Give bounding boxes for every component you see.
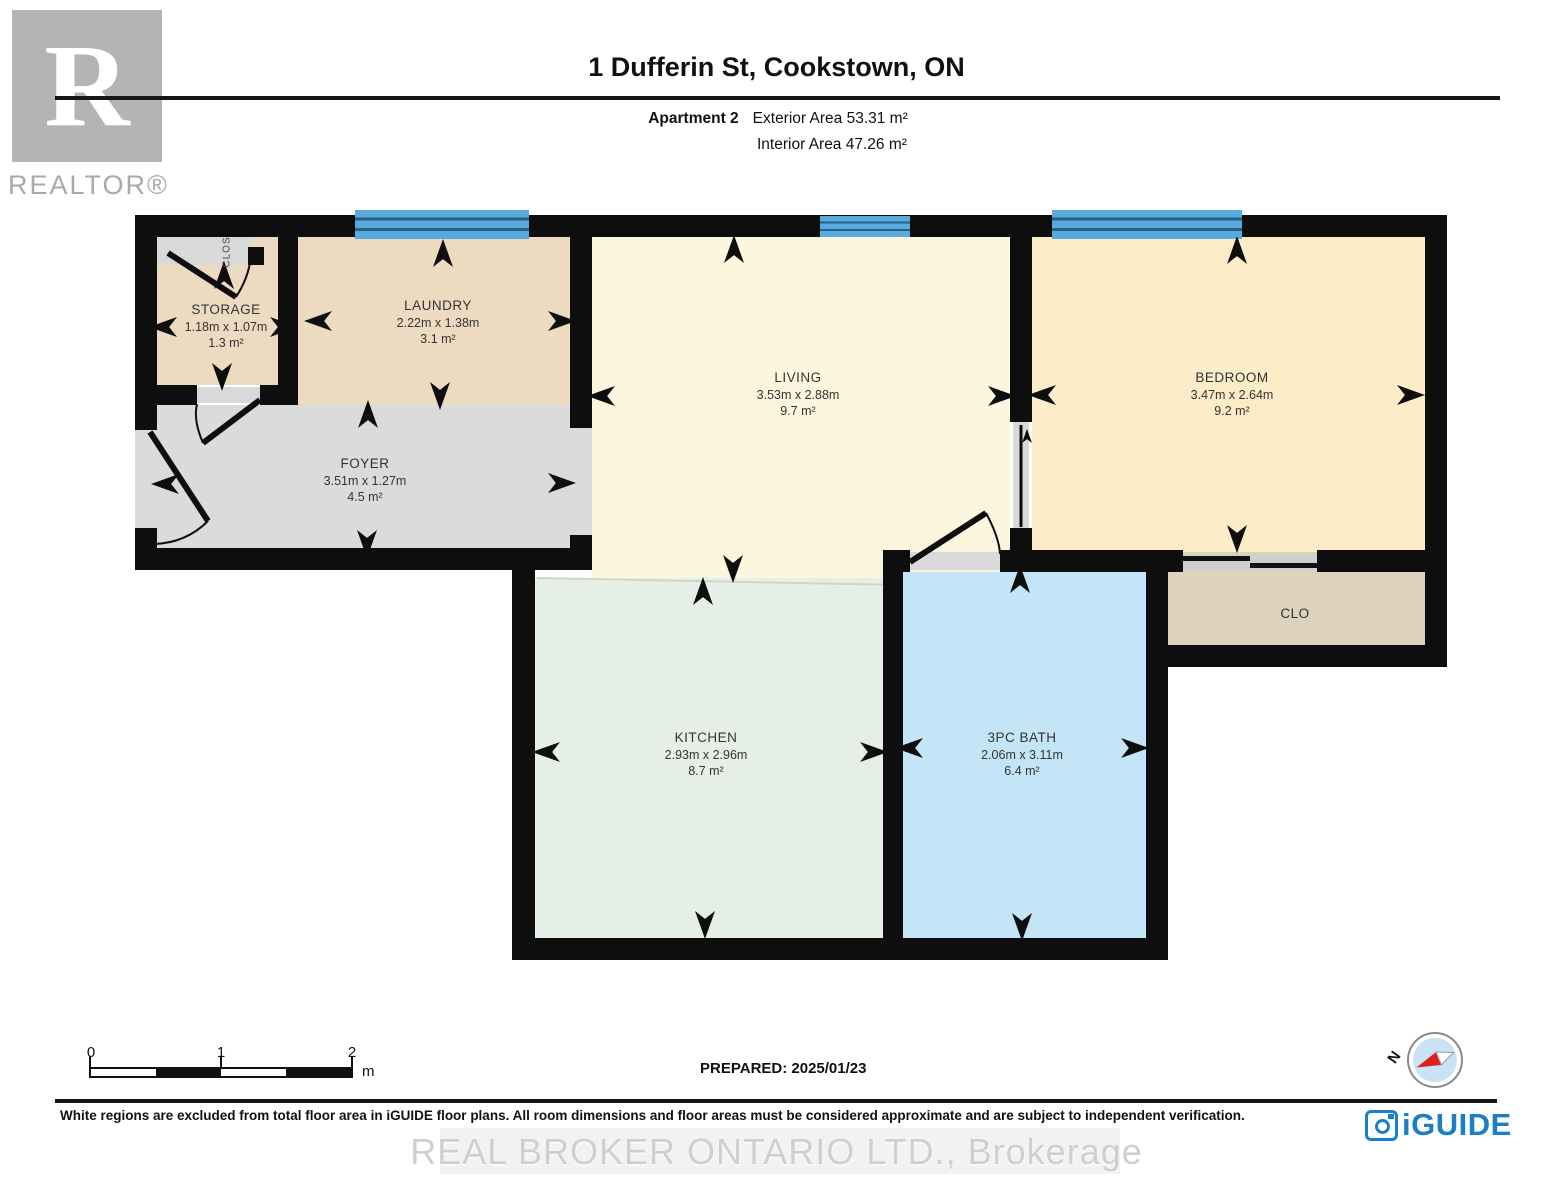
scale-bar (89, 1067, 353, 1078)
storage-door-leaf (203, 400, 260, 443)
foyer-label: FOYER 3.51m x 1.27m 4.5 m² (324, 455, 407, 505)
brokerage-watermark: REAL BROKER ONTARIO LTD., Brokerage (0, 1131, 1553, 1173)
storage-closet-door-arc (236, 256, 251, 297)
bedroom-label: BEDROOM 3.47m x 2.64m 9.2 m² (1191, 369, 1274, 419)
bath-door-leaf (910, 513, 986, 562)
footer-divider (55, 1099, 1497, 1103)
entry-door-leaf (150, 432, 208, 521)
floorplan-page: R REALTOR® 1 Dufferin St, Cookstown, ON … (0, 0, 1553, 1200)
bath-door-arc (986, 513, 1000, 554)
scale-unit: m (362, 1063, 375, 1080)
entry-door-arc (154, 521, 208, 544)
laundry-label: LAUNDRY 2.22m x 1.38m 3.1 m² (397, 297, 480, 347)
living-label: LIVING 3.53m x 2.88m 9.7 m² (757, 369, 840, 419)
small-closet-label: CLOS (222, 236, 233, 267)
bath-label: 3PC BATH 2.06m x 3.11m 6.4 m² (981, 729, 1063, 779)
closet-label: CLO (1280, 605, 1309, 623)
disclaimer-text: White regions are excluded from total fl… (60, 1108, 1245, 1123)
iguide-wordmark: iGUIDE (1402, 1107, 1512, 1143)
prepared-date: PREPARED: 2025/01/23 (700, 1060, 866, 1077)
iguide-logo: iGUIDE (1365, 1107, 1512, 1143)
kitchen-label: KITCHEN 2.93m x 2.96m 8.7 m² (665, 729, 748, 779)
iguide-camera-icon (1365, 1110, 1398, 1141)
door-swings-overlay (0, 0, 1553, 1200)
storage-door-arc (196, 404, 203, 443)
compass-icon (1407, 1032, 1463, 1088)
storage-label: STORAGE 1.18m x 1.07m 1.3 m² (185, 301, 268, 351)
